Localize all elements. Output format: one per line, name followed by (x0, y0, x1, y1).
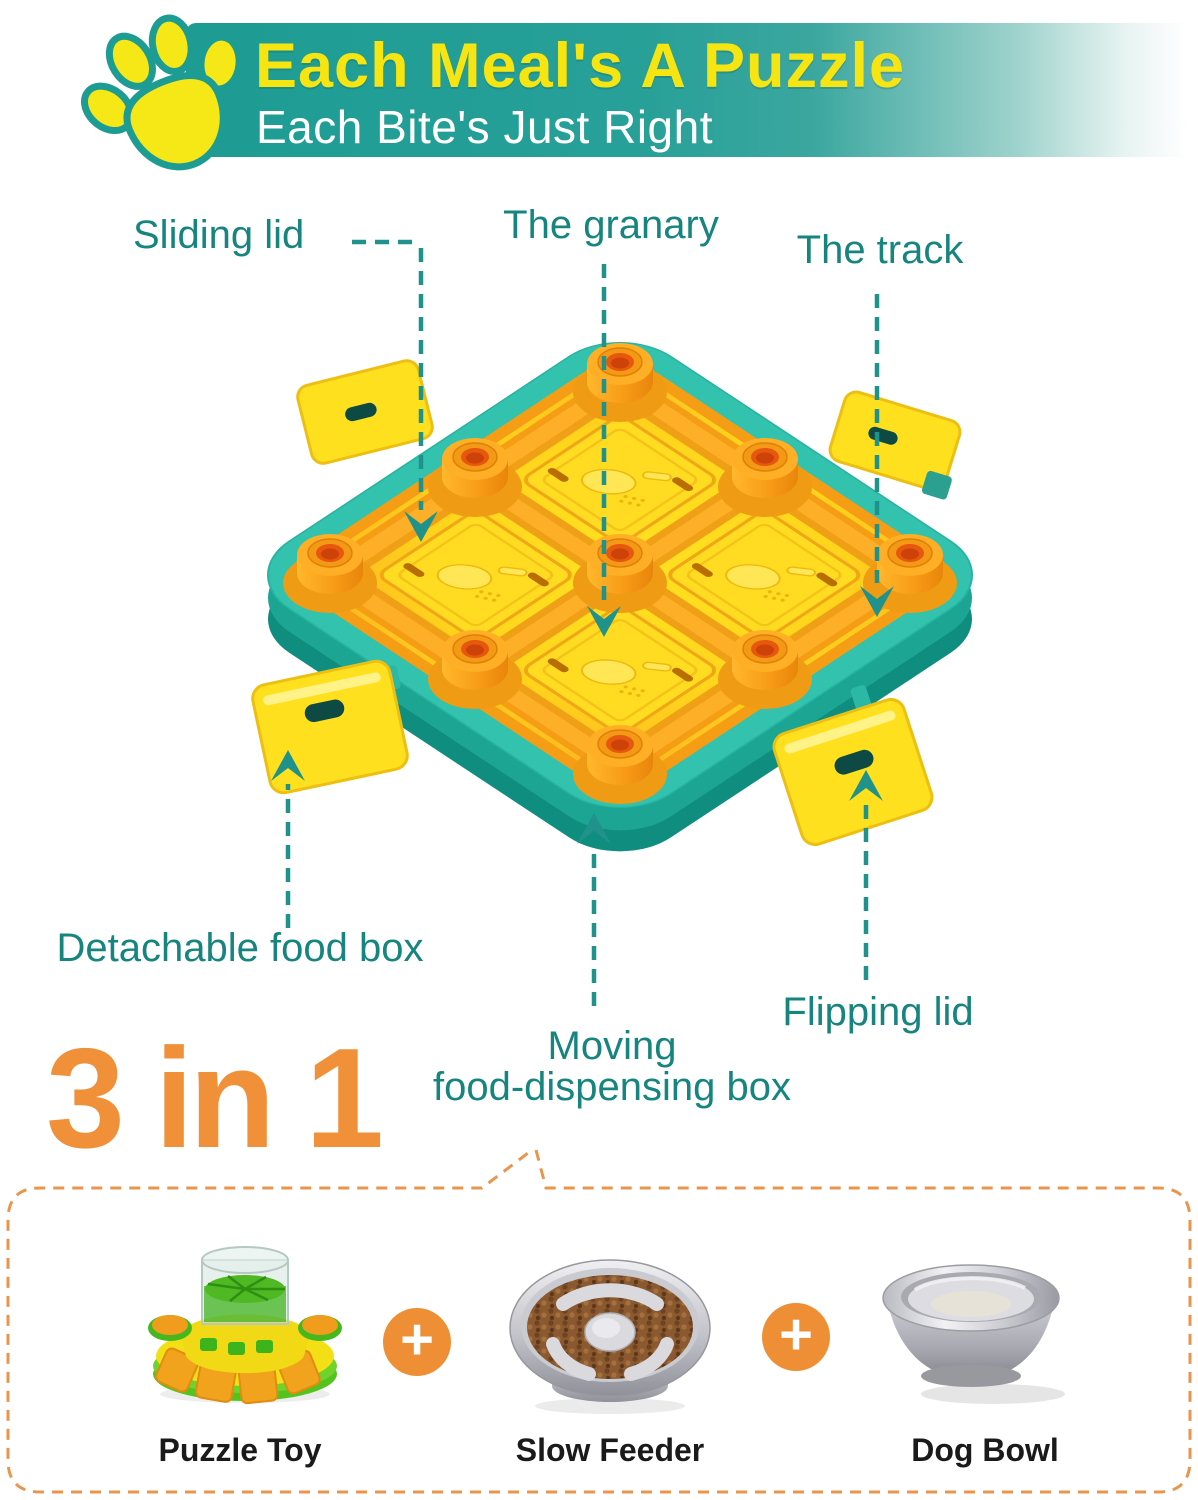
paw-icon (55, 0, 280, 190)
item-label-puzzle-toy: Puzzle Toy (159, 1432, 322, 1469)
item-label-slow-feeder: Slow Feeder (516, 1432, 705, 1469)
dog-bowl-image (875, 1252, 1075, 1410)
callout-moving-line2: food-dispensing box (433, 1067, 791, 1108)
detachable-food-box (250, 659, 410, 796)
slow-feeder-image (505, 1248, 715, 1416)
food-box-top-left (295, 358, 435, 466)
callout-granary: The granary (503, 203, 719, 248)
product-infographic: Each Meal's A Puzzle Each Bite's Just Ri… (0, 0, 1198, 1500)
puzzle-feeder-product-image (205, 318, 1025, 918)
callout-sliding-lid: Sliding lid (133, 213, 304, 258)
callout-flipping-lid: Flipping lid (782, 990, 973, 1035)
item-label-dog-bowl: Dog Bowl (911, 1432, 1059, 1469)
banner-title: Each Meal's A Puzzle (255, 30, 905, 102)
banner-subtitle: Each Bite's Just Right (256, 100, 713, 154)
callout-detachable-food-box: Detachable food box (57, 926, 424, 971)
three-in-one-heading: 3 in 1 (46, 1028, 379, 1170)
callout-moving-box: Moving food-dispensing box (433, 1026, 791, 1108)
plus-icon: + (762, 1303, 830, 1371)
callout-moving-line1: Moving (433, 1026, 791, 1067)
puzzle-toy-image (140, 1242, 350, 1407)
plus-icon: + (383, 1308, 451, 1376)
callout-track: The track (797, 228, 964, 273)
